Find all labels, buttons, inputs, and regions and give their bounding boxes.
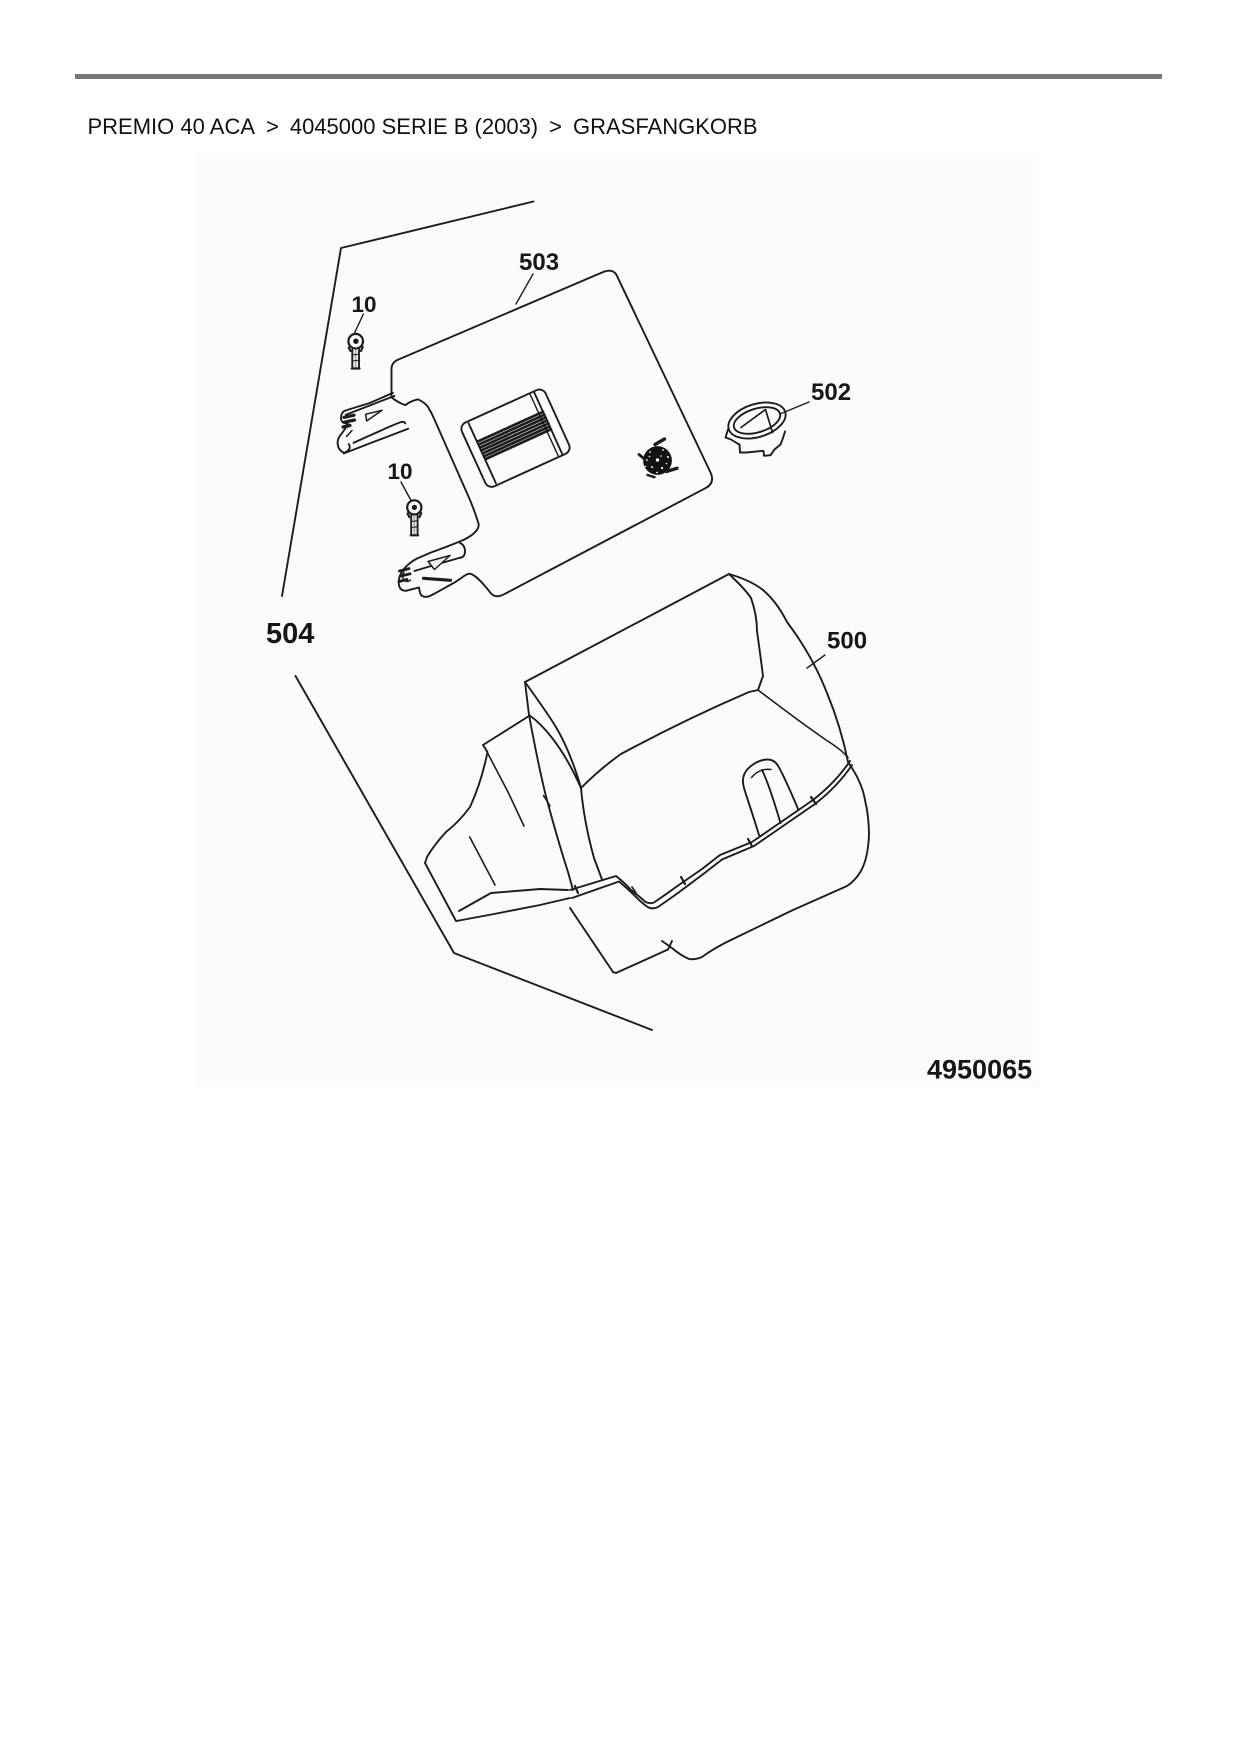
svg-text:10: 10 <box>352 292 377 317</box>
svg-text:504: 504 <box>266 618 314 650</box>
svg-text:4950065: 4950065 <box>927 1055 1032 1085</box>
svg-text:500: 500 <box>827 628 867 655</box>
svg-text:10: 10 <box>388 459 413 484</box>
svg-text:503: 503 <box>519 249 559 276</box>
svg-text:502: 502 <box>811 379 851 406</box>
